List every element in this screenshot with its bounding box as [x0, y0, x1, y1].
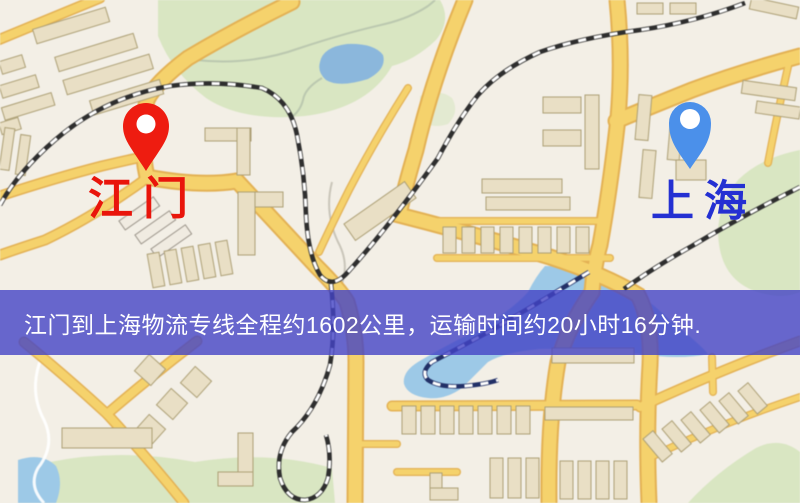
route-info-text: 江门到上海物流专线全程约1602公里，运输时间约20小时16分钟.	[24, 306, 701, 340]
map-screenshot: 江门 上海 江门到上海物流专线全程约1602公里，运输时间约20小时16分钟.	[0, 0, 800, 503]
destination-pin-icon[interactable]	[669, 102, 711, 169]
route-info-banner: 江门到上海物流专线全程约1602公里，运输时间约20小时16分钟.	[0, 290, 800, 355]
origin-pin-icon[interactable]	[123, 103, 169, 171]
destination-city-label: 上海	[651, 181, 757, 224]
origin-city-label: 江门	[88, 176, 198, 221]
pins-overlay	[0, 0, 800, 503]
